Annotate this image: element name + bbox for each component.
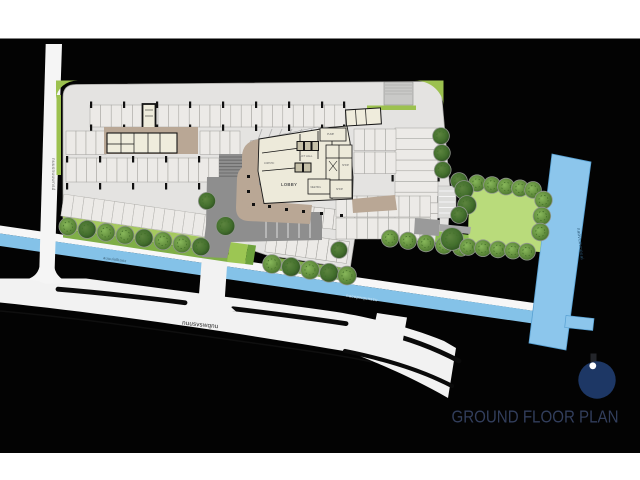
svg-text:SHOP: SHOP: [342, 164, 349, 167]
svg-text:PUMP: PUMP: [327, 133, 335, 136]
svg-text:nuusnuuwnsd: nuusnuuwnsd: [51, 158, 56, 191]
svg-text:GROUND FLOOR PLAN: GROUND FLOOR PLAN: [452, 407, 619, 427]
svg-text:LIFT HALL: LIFT HALL: [300, 154, 313, 158]
svg-text:JURISTIC: JURISTIC: [264, 163, 275, 165]
svg-text:LOBBY: LOBBY: [281, 182, 297, 187]
svg-text:SHOP: SHOP: [336, 188, 343, 191]
svg-text:MEETING: MEETING: [311, 187, 322, 189]
